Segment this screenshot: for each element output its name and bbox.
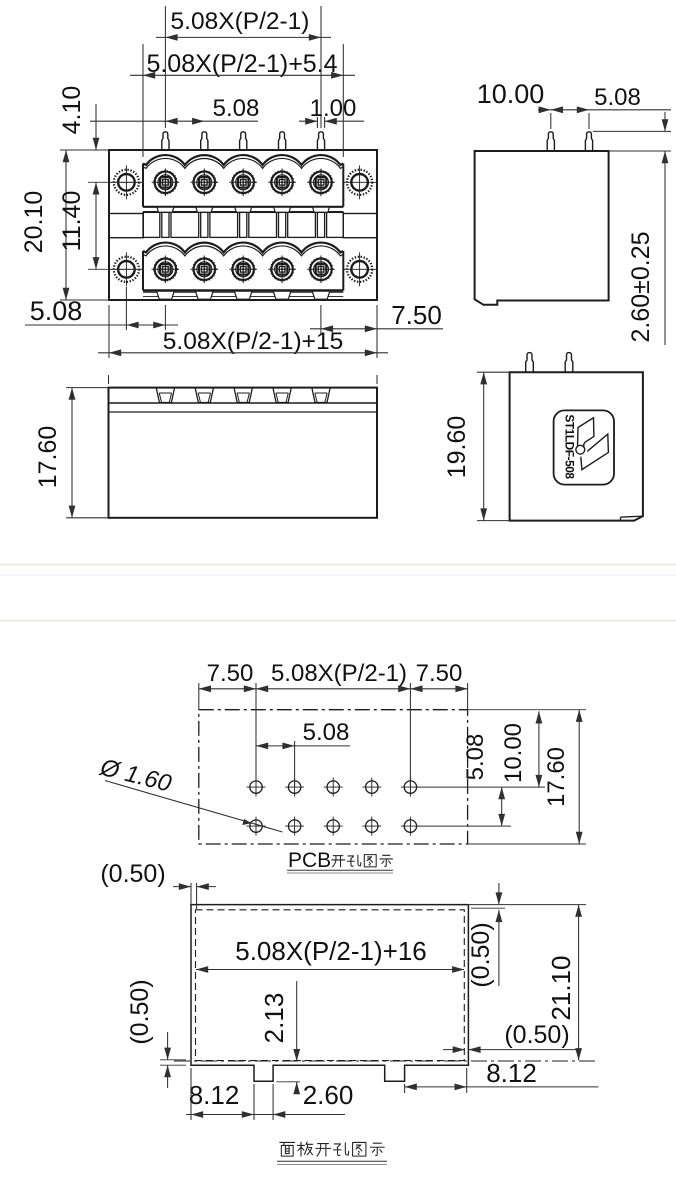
svg-text:(0.50): (0.50)	[467, 922, 495, 987]
svg-text:5.08X(P/2-1): 5.08X(P/2-1)	[271, 660, 407, 687]
svg-text:5.08X(P/2-1)+16: 5.08X(P/2-1)+16	[235, 936, 427, 966]
svg-text:7.50: 7.50	[416, 660, 463, 687]
svg-text:5.08: 5.08	[594, 84, 641, 111]
svg-text:11.40: 11.40	[58, 191, 86, 252]
svg-text:(0.50): (0.50)	[126, 979, 154, 1044]
svg-text:1.00: 1.00	[310, 95, 357, 122]
svg-text:5.08X(P/2-1)+5.4: 5.08X(P/2-1)+5.4	[146, 50, 337, 78]
svg-text:10.00: 10.00	[477, 79, 545, 109]
svg-text:10.00: 10.00	[500, 723, 527, 783]
svg-text:5.08: 5.08	[213, 95, 260, 122]
svg-text:2.60: 2.60	[303, 1080, 354, 1110]
svg-text:2.13: 2.13	[259, 993, 289, 1044]
svg-text:2.60±0.25: 2.60±0.25	[627, 231, 655, 342]
svg-text:8.12: 8.12	[486, 1058, 537, 1088]
svg-text:7.50: 7.50	[391, 300, 442, 330]
svg-text:17.60: 17.60	[543, 747, 570, 807]
svg-text:20.10: 20.10	[20, 191, 48, 254]
svg-text:5.08: 5.08	[462, 734, 489, 781]
svg-text:(0.50): (0.50)	[504, 1021, 569, 1049]
svg-text:5.08X(P/2-1): 5.08X(P/2-1)	[171, 8, 310, 35]
svg-text:5.08: 5.08	[303, 719, 350, 746]
svg-text:19.60: 19.60	[443, 416, 471, 479]
svg-text:4.10: 4.10	[58, 86, 86, 135]
svg-text:7.50: 7.50	[207, 660, 254, 687]
svg-text:(0.50): (0.50)	[100, 860, 165, 888]
svg-text:17.60: 17.60	[34, 426, 62, 489]
svg-text:PCB: PCB	[288, 849, 331, 872]
svg-text:5.08: 5.08	[30, 296, 83, 326]
svg-text:21.10: 21.10	[546, 955, 576, 1020]
svg-text:5.08X(P/2-1)+15: 5.08X(P/2-1)+15	[163, 328, 343, 355]
svg-text:8.12: 8.12	[189, 1080, 240, 1110]
